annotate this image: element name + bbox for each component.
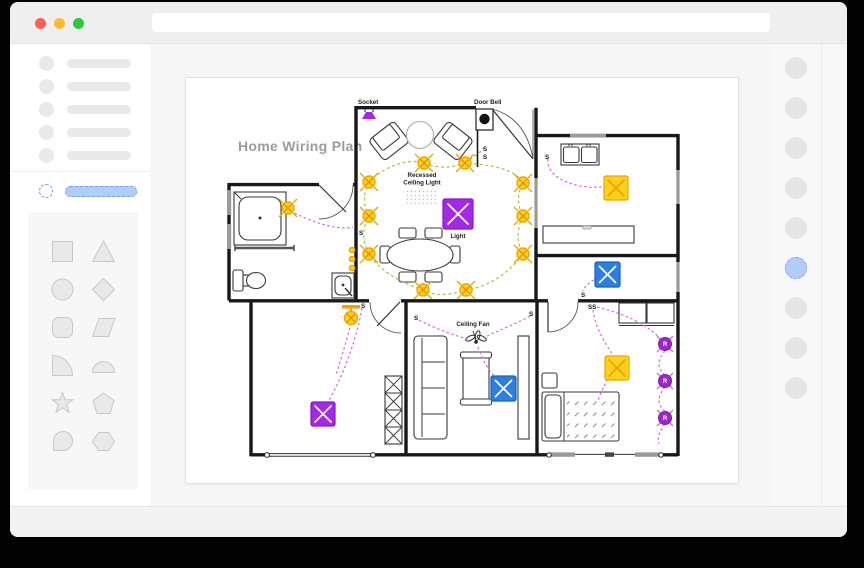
yellow-light-bedroom[interactable] — [605, 356, 629, 380]
tool-button[interactable] — [785, 217, 807, 239]
wall-light[interactable] — [342, 305, 360, 325]
light-label[interactable]: Light — [450, 233, 465, 240]
tool-button-selected[interactable] — [785, 257, 807, 279]
menu-item-icon — [39, 125, 54, 140]
dining-table[interactable] — [380, 228, 460, 282]
floor-plan-svg: Home Wiring Plan — [186, 78, 738, 483]
round-table[interactable] — [407, 122, 434, 149]
address-bar[interactable] — [152, 13, 770, 32]
coffee-table[interactable] — [461, 352, 492, 405]
svg-text:S: S — [483, 146, 487, 153]
app-window: Home Wiring Plan — [10, 2, 847, 537]
socket-label[interactable]: Socket — [358, 99, 378, 106]
shapes-palette — [28, 212, 138, 489]
receptacle-3[interactable]: R — [657, 410, 673, 426]
canvas-page[interactable]: Home Wiring Plan — [185, 77, 739, 484]
close-button[interactable] — [35, 18, 46, 29]
wall-joint — [659, 453, 663, 457]
menu-item-icon — [39, 79, 54, 94]
menu-item-icon — [39, 102, 54, 117]
socket-symbol[interactable] — [362, 109, 376, 119]
shape-parallelogram[interactable] — [90, 314, 117, 341]
bed[interactable] — [542, 392, 619, 441]
tool-button[interactable] — [785, 337, 807, 359]
kitchen-sink[interactable] — [561, 144, 599, 165]
blue-light-living[interactable] — [491, 376, 516, 401]
canvas-area: Home Wiring Plan — [150, 44, 770, 507]
shape-circle[interactable] — [49, 276, 76, 303]
recessed-label-1[interactable]: Recessed — [408, 172, 437, 179]
purple-light-main[interactable] — [443, 199, 473, 229]
svg-text:R: R — [663, 416, 668, 422]
purple-light-bottom-left[interactable] — [311, 402, 335, 426]
svg-text:S: S — [414, 315, 418, 322]
shape-rounded-square[interactable] — [49, 314, 76, 341]
door-bell-label[interactable]: Door Bell — [474, 99, 502, 106]
menu-item-label-bar — [67, 105, 131, 114]
armchair-right[interactable] — [432, 121, 473, 161]
recessed-label-2[interactable]: Ceiling Light — [403, 180, 440, 187]
svg-text:S: S — [483, 154, 487, 161]
sidebar-divider — [10, 171, 150, 172]
svg-text:S: S — [529, 311, 533, 318]
door-bell-symbol[interactable] — [476, 109, 493, 130]
wall-joint — [547, 453, 551, 457]
menu-item-icon — [39, 56, 54, 71]
armchair-left[interactable] — [368, 121, 409, 161]
tool-button[interactable] — [785, 97, 807, 119]
shape-teardrop[interactable] — [49, 428, 76, 455]
zoom-button[interactable] — [73, 18, 84, 29]
selected-item-label-bar — [65, 186, 137, 197]
shape-hexagon[interactable] — [90, 428, 117, 455]
tool-button[interactable] — [785, 57, 807, 79]
svg-text:S: S — [545, 154, 549, 161]
status-bar — [10, 506, 847, 537]
svg-text:SS: SS — [588, 304, 596, 311]
minimize-button[interactable] — [54, 18, 65, 29]
svg-text:S: S — [361, 303, 365, 310]
menu-list — [10, 44, 150, 163]
shape-quarter-circle[interactable] — [49, 352, 76, 379]
tv-cabinet[interactable] — [518, 336, 529, 439]
bedside-table[interactable] — [542, 373, 557, 388]
receptacle-2[interactable]: R — [657, 373, 673, 389]
tool-button[interactable] — [785, 137, 807, 159]
menu-item[interactable] — [39, 56, 150, 71]
svg-text:R: R — [663, 342, 668, 348]
right-toolbar-list — [770, 44, 822, 399]
shower[interactable] — [234, 192, 286, 245]
wire-junction-dots — [349, 247, 354, 270]
tool-button[interactable] — [785, 177, 807, 199]
right-toolbar — [770, 44, 847, 507]
shape-square[interactable] — [49, 238, 76, 265]
sofa[interactable] — [414, 336, 447, 439]
recessed-hatch[interactable] — [407, 188, 438, 204]
kitchen-counter-handle — [583, 226, 591, 229]
wardrobe[interactable] — [619, 303, 674, 326]
menu-item-label-bar — [67, 59, 131, 68]
yellow-light-kitchen[interactable] — [604, 176, 628, 200]
towel-rail[interactable] — [235, 245, 294, 251]
svg-text:S: S — [581, 292, 585, 299]
menu-item[interactable] — [39, 148, 150, 163]
shape-pentagon[interactable] — [90, 390, 117, 417]
svg-text:S: S — [359, 230, 363, 237]
plan-title[interactable]: Home Wiring Plan — [238, 138, 362, 154]
receptacle-1[interactable]: R — [657, 336, 673, 352]
tool-button[interactable] — [785, 297, 807, 319]
shape-semicircle[interactable] — [90, 352, 117, 379]
menu-item-selected[interactable] — [10, 182, 150, 200]
shelf-unit[interactable] — [385, 376, 402, 444]
selected-item-icon — [39, 184, 53, 198]
left-sidebar — [10, 44, 151, 507]
bathroom-sink[interactable] — [332, 273, 354, 298]
tool-button[interactable] — [785, 377, 807, 399]
shape-triangle[interactable] — [90, 238, 117, 265]
toilet[interactable] — [233, 270, 266, 291]
shape-star[interactable] — [49, 390, 76, 417]
titlebar — [10, 2, 847, 44]
svg-text:R: R — [663, 379, 668, 385]
menu-item-icon — [39, 148, 54, 163]
shape-diamond[interactable] — [90, 276, 117, 303]
ceiling-fan-label[interactable]: Ceiling Fan — [456, 321, 490, 328]
menu-item[interactable] — [39, 102, 150, 117]
menu-item-label-bar — [67, 128, 131, 137]
blue-light-corridor[interactable] — [595, 262, 620, 287]
menu-item[interactable] — [39, 79, 150, 94]
menu-item[interactable] — [39, 125, 150, 140]
menu-item-label-bar — [67, 82, 131, 91]
menu-item-label-bar — [67, 151, 131, 160]
right-toolbar-divider — [821, 44, 822, 507]
